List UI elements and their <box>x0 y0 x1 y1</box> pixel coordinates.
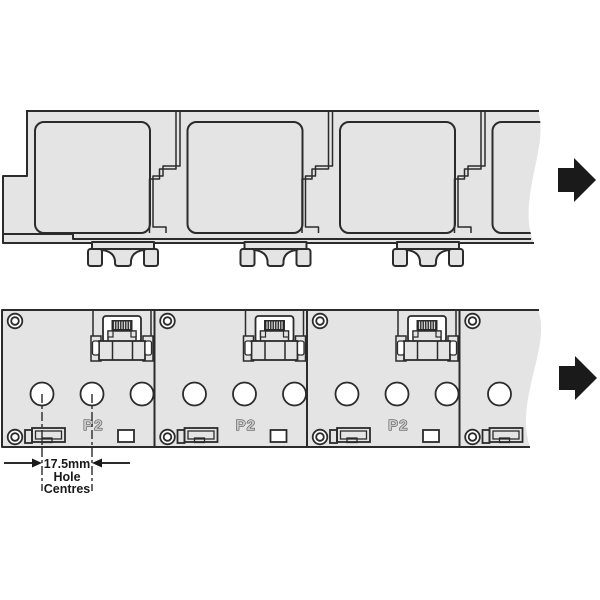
dimension-value: 17.5mm <box>44 457 91 471</box>
port-label: P2 <box>236 417 256 434</box>
din-rail-clip <box>88 242 158 266</box>
din-rail-clip <box>241 242 311 266</box>
modular-panel-diagram: P2 P2 P2 17.5mm Hole Centres <box>0 0 600 600</box>
arrowhead-right-icon <box>32 459 42 468</box>
top-view-body <box>3 111 541 243</box>
port-label: P2 <box>83 417 103 434</box>
right-arrow-icon <box>558 158 596 202</box>
arrowhead-left-icon <box>92 459 102 468</box>
dimension-label-line3: Centres <box>44 482 91 496</box>
right-arrow-icon <box>559 356 597 400</box>
top-view-assembly <box>3 111 600 266</box>
port-label: P2 <box>388 417 408 434</box>
din-rail-clip <box>393 242 463 266</box>
